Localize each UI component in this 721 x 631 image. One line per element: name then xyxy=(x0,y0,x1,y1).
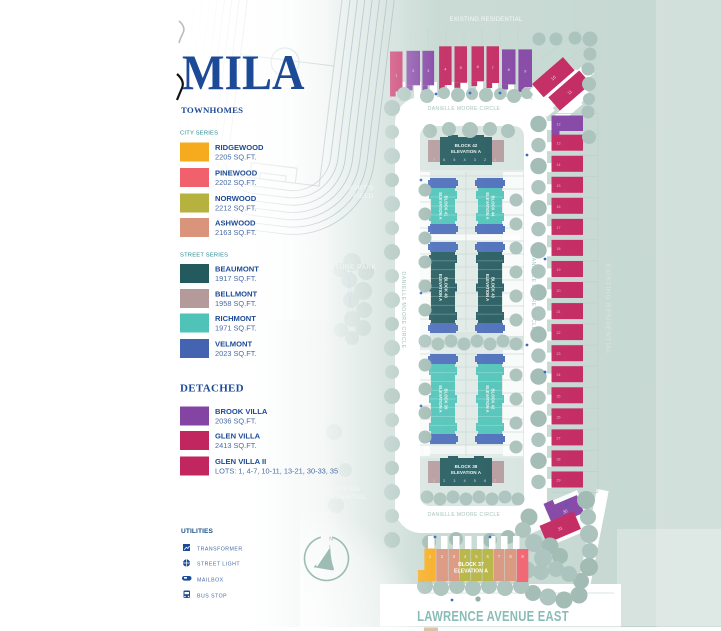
svg-text:UTILITIES: UTILITIES xyxy=(181,528,214,535)
svg-text:FUTURE: FUTURE xyxy=(296,338,326,345)
svg-text:LOTS: 1, 4-7, 10-11, 13-21, 30: LOTS: 1, 4-7, 10-11, 13-21, 30-33, 35 xyxy=(215,467,338,476)
svg-text:DAYCARE: DAYCARE xyxy=(294,346,329,353)
svg-text:RESIDENTIAL: RESIDENTIAL xyxy=(319,494,367,501)
svg-text:CITY SERIES: CITY SERIES xyxy=(180,131,218,137)
svg-text:TOWNHOMES: TOWNHOMES xyxy=(181,105,243,115)
svg-text:2205 SQ.FT.: 2205 SQ.FT. xyxy=(215,153,257,162)
svg-text:2163 SQ.FT.: 2163 SQ.FT. xyxy=(215,228,257,237)
svg-text:NORWOOD: NORWOOD xyxy=(215,194,257,203)
svg-text:2212 SQ.FT.: 2212 SQ.FT. xyxy=(215,204,257,213)
svg-text:N: N xyxy=(329,537,333,543)
svg-text:DANIELLE MOORE CIRCLE: DANIELLE MOORE CIRCLE xyxy=(428,106,501,112)
svg-text:GLEN VILLA: GLEN VILLA xyxy=(215,432,261,441)
svg-text:RIDGEWOOD: RIDGEWOOD xyxy=(215,143,264,152)
svg-text:BELLMONT: BELLMONT xyxy=(215,290,258,299)
svg-text:MAILBOX: MAILBOX xyxy=(197,578,224,584)
svg-text:DANIELLE MOORE CIRCLE: DANIELLE MOORE CIRCLE xyxy=(400,271,406,348)
svg-text:RICHMONT: RICHMONT xyxy=(215,314,256,323)
svg-text:EXISTING RESIDENTIAL: EXISTING RESIDENTIAL xyxy=(604,264,611,355)
svg-text:STREET LIGHT: STREET LIGHT xyxy=(197,562,240,568)
svg-text:ASHWOOD: ASHWOOD xyxy=(215,219,256,228)
svg-text:2023 SQ.FT.: 2023 SQ.FT. xyxy=(215,349,257,358)
svg-text:FIELD: FIELD xyxy=(353,193,374,200)
svg-text:1971 SQ.FT.: 1971 SQ.FT. xyxy=(215,324,257,333)
svg-text:FUTURE PARK: FUTURE PARK xyxy=(326,264,377,271)
svg-text:PINEWOOD: PINEWOOD xyxy=(215,169,258,178)
svg-text:EXISTING RESIDENTIAL: EXISTING RESIDENTIAL xyxy=(449,17,522,23)
svg-text:BEAUMONT: BEAUMONT xyxy=(215,265,259,274)
svg-text:TRANSFORMER: TRANSFORMER xyxy=(197,547,243,553)
svg-text:GLEN VILLA II: GLEN VILLA II xyxy=(215,457,266,466)
svg-text:DANIELLE MOORE CIRCLE: DANIELLE MOORE CIRCLE xyxy=(428,512,501,518)
svg-text:EXISTING: EXISTING xyxy=(326,486,360,493)
svg-text:1958 SQ.FT.: 1958 SQ.FT. xyxy=(215,299,257,308)
svg-text:SPORT'S: SPORT'S xyxy=(343,185,375,192)
svg-text:2202 SQ.FT.: 2202 SQ.FT. xyxy=(215,178,257,187)
svg-text:DETACHED: DETACHED xyxy=(180,383,244,395)
svg-text:DANIELLE MOORE CIRCLE: DANIELLE MOORE CIRCLE xyxy=(530,253,536,330)
svg-text:1917 SQ.FT.: 1917 SQ.FT. xyxy=(215,274,257,283)
svg-text:BROOK VILLA: BROOK VILLA xyxy=(215,407,268,416)
svg-text:LAWRENCE AVENUE EAST: LAWRENCE AVENUE EAST xyxy=(417,608,569,625)
svg-text:BUS STOP: BUS STOP xyxy=(197,594,227,600)
svg-text:MILA: MILA xyxy=(182,46,304,101)
svg-text:VELMONT: VELMONT xyxy=(215,340,252,349)
svg-text:STREET SERIES: STREET SERIES xyxy=(180,253,228,259)
svg-text:2413 SQ.FT.: 2413 SQ.FT. xyxy=(215,441,257,450)
svg-text:2036 SQ.FT.: 2036 SQ.FT. xyxy=(215,417,257,426)
